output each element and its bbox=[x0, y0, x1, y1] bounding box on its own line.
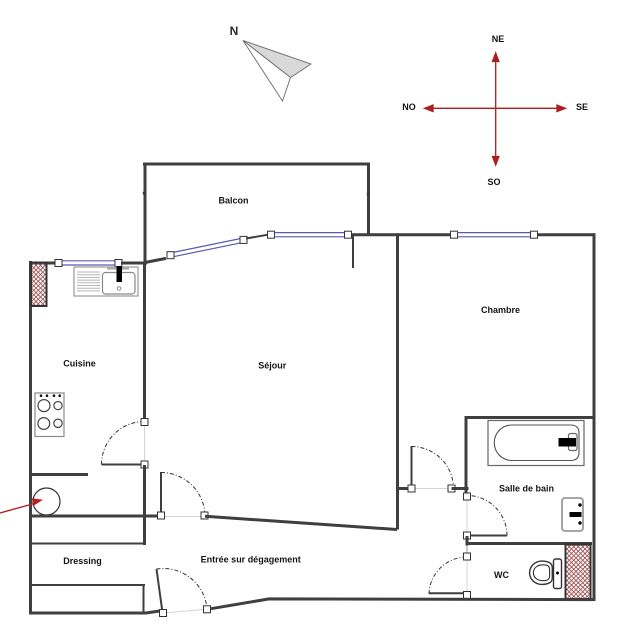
svg-text:SE: SE bbox=[576, 102, 588, 112]
svg-text:Chambre: Chambre bbox=[481, 305, 520, 315]
svg-text:Dressing: Dressing bbox=[63, 556, 102, 566]
svg-text:Cuisine: Cuisine bbox=[63, 359, 96, 369]
svg-text:NE: NE bbox=[492, 34, 505, 44]
svg-text:N: N bbox=[230, 24, 239, 38]
svg-text:Entrée sur dégagement: Entrée sur dégagement bbox=[201, 555, 301, 565]
svg-text:Salle de bain: Salle de bain bbox=[499, 484, 554, 494]
svg-text:WC: WC bbox=[494, 570, 509, 580]
svg-text:Séjour: Séjour bbox=[258, 360, 287, 370]
svg-text:Balcon: Balcon bbox=[218, 196, 248, 206]
svg-text:SO: SO bbox=[487, 177, 500, 187]
svg-text:NO: NO bbox=[402, 102, 416, 112]
